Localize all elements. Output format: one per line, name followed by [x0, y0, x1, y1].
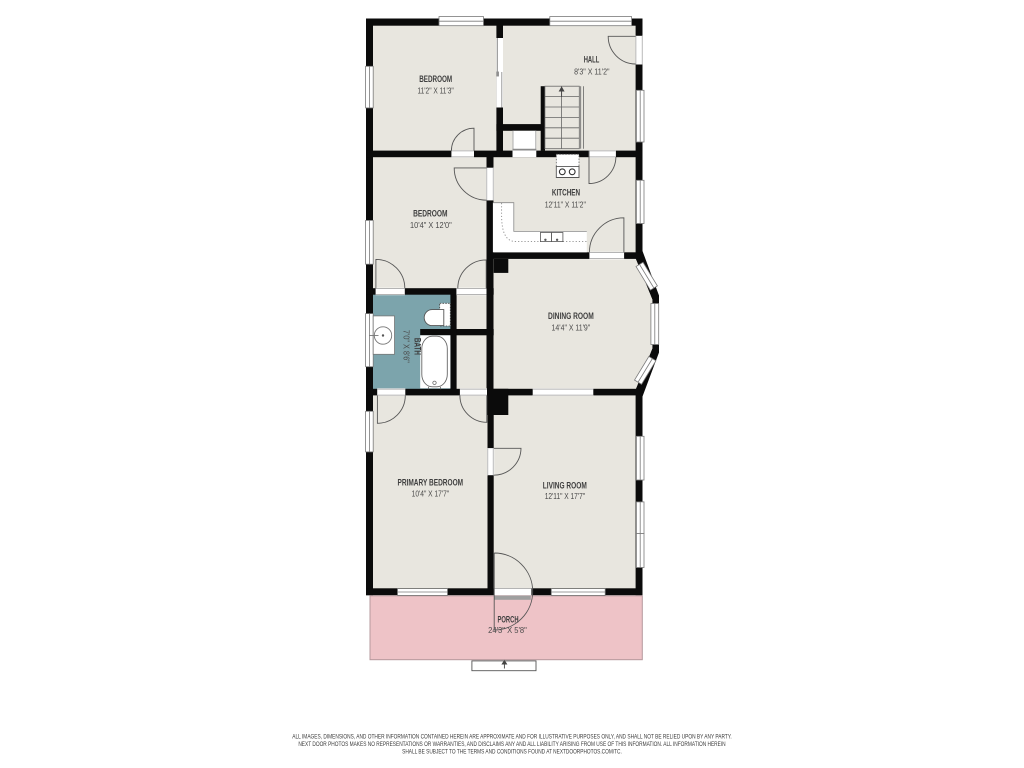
svg-text:HALL: HALL [584, 55, 600, 65]
svg-text:SHALL BE SUBJECT TO THE TERMS: SHALL BE SUBJECT TO THE TERMS AND CONDIT… [402, 749, 622, 755]
svg-text:BEDROOM: BEDROOM [413, 209, 447, 219]
svg-text:ALL IMAGES, DIMENSIONS, AND OT: ALL IMAGES, DIMENSIONS, AND OTHER INFORM… [292, 735, 732, 741]
svg-text:12'11" X 17'7": 12'11" X 17'7" [545, 492, 585, 501]
svg-text:DINING ROOM: DINING ROOM [548, 311, 594, 321]
svg-text:7'0" X 8'6": 7'0" X 8'6" [402, 330, 411, 363]
svg-text:10'4" X 17'7": 10'4" X 17'7" [412, 489, 450, 498]
svg-text:24'3" X 5'8": 24'3" X 5'8" [488, 626, 527, 635]
svg-text:BATH: BATH [413, 338, 423, 355]
svg-text:BEDROOM: BEDROOM [419, 74, 452, 84]
svg-text:PRIMARY BEDROOM: PRIMARY BEDROOM [398, 478, 464, 488]
svg-text:NEXT DOOR PHOTOS MAKES NO REPR: NEXT DOOR PHOTOS MAKES NO REPRESENTATION… [298, 742, 725, 748]
svg-text:12'11" X 11'2": 12'11" X 11'2" [545, 200, 586, 209]
svg-text:LIVING ROOM: LIVING ROOM [543, 481, 587, 491]
svg-text:8'3" X 11'2": 8'3" X 11'2" [574, 68, 609, 77]
svg-text:10'4" X 12'0": 10'4" X 12'0" [410, 221, 452, 230]
svg-text:11'2" X 11'3": 11'2" X 11'3" [417, 87, 453, 96]
svg-text:KITCHEN: KITCHEN [552, 188, 580, 198]
svg-text:14'4" X 11'9": 14'4" X 11'9" [552, 323, 591, 332]
svg-text:PORCH: PORCH [497, 615, 518, 625]
